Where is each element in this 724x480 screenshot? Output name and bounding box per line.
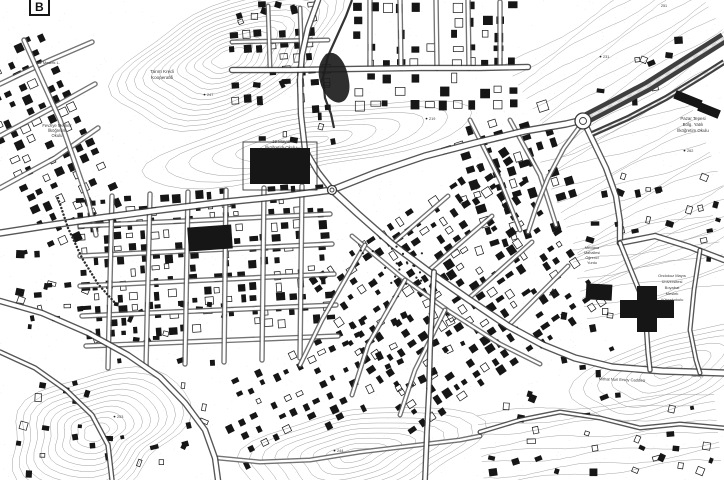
map-label: Öğrenci [585, 256, 598, 260]
map-label: Yurdu [587, 261, 597, 265]
grid-letter: B [29, 0, 50, 16]
map-label: Mahallesi [584, 251, 600, 255]
map-label: 251 [661, 4, 667, 8]
map-label: Kooperatifi [151, 75, 173, 80]
scattered-buildings [15, 1, 721, 478]
spot-height-label: 244 [337, 449, 343, 453]
map-label: Üniversitesi [662, 279, 683, 284]
map-label: 19 Mayıs [272, 139, 291, 144]
map-label: Ondokuz Mayıs [658, 273, 686, 278]
map-label: İlköğretim Okulu [265, 145, 297, 150]
spot-height-label: 247 [207, 93, 213, 97]
spot-height-label: 231 [603, 55, 609, 59]
spot-height-label: 219 [429, 117, 435, 121]
map-canvas: Kız Meslek L.Fevziye MerkezİlköğretimOku… [0, 0, 724, 480]
map-label: Yüksekokulu [661, 297, 684, 302]
map-label: İlköğretim Okulu [677, 128, 709, 133]
map-label: Okulu [52, 133, 64, 138]
map-label: Bölg. Yatılı [683, 122, 704, 127]
map-label: Tarım Kredi [150, 69, 173, 74]
map-label: Pazar Tepesi [680, 116, 705, 121]
map-page: Kız Meslek L.Fevziye MerkezİlköğretimOku… [0, 0, 724, 480]
map-label: Mevlâna [585, 246, 600, 250]
map-label: Kız Meslek L. [36, 60, 60, 65]
spot-height-label: 262 [687, 149, 693, 153]
spot-height-label: 253 [117, 415, 123, 419]
map-label: Sanayi [691, 374, 703, 378]
map-label: Meslek [666, 291, 679, 296]
map-label: Mithat Nuri Ersoy Caddesi [599, 376, 646, 383]
map-label: Boyabat [665, 285, 681, 290]
